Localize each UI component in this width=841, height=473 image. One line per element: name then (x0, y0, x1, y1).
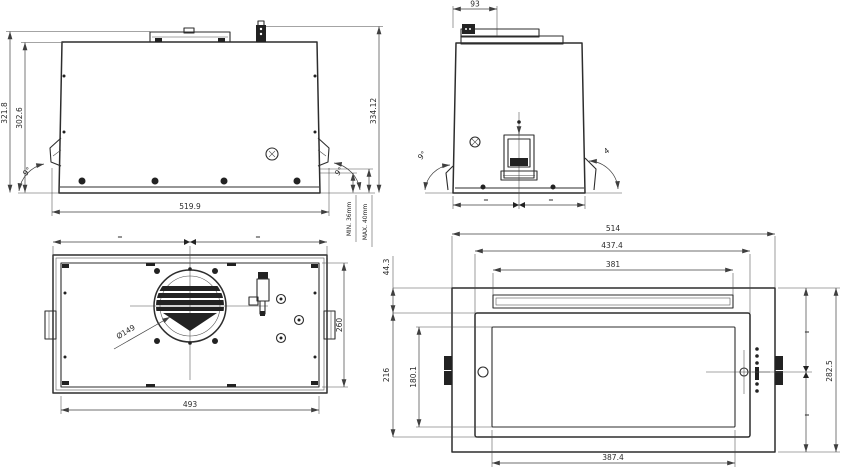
angle-label-side-left: 9° (416, 149, 429, 162)
equal-mark-bottom-top: = (804, 328, 809, 336)
angle-label-front-left: 9° (21, 165, 34, 178)
dim-label-width-top: 493 (183, 400, 198, 409)
dim-label-gap-max: MAX. 40mm (362, 204, 369, 241)
side-bracket (461, 24, 563, 44)
equal-mark-top-left: = (117, 233, 122, 241)
dim-label-glass-height: 180.1 (409, 366, 418, 388)
fan-assembly (130, 246, 268, 380)
front-body (18, 42, 375, 193)
standoff-screws (277, 295, 304, 343)
latch-left (444, 356, 452, 385)
dim-label-height-inner: 302.6 (15, 107, 24, 129)
equal-mark-top-right: = (255, 233, 260, 241)
bottom-dimensions: 514 437.4 381 44.3 216 180.1 (382, 224, 840, 467)
control-buttons (755, 347, 759, 393)
knockout-hole (266, 148, 278, 160)
dim-label-width-frame: 437.4 (601, 241, 623, 250)
dim-label-height-outer: 321.8 (0, 102, 9, 124)
angle-label-side-right: 4 (602, 146, 611, 156)
dim-label-width-front: 519.9 (179, 202, 201, 211)
latch-right (775, 356, 783, 385)
bottom-screws (63, 75, 317, 185)
capacitor (249, 272, 269, 316)
front-view: 321.8 302.6 334.12 519.9 MIN. 36mm MAX. … (0, 21, 383, 247)
dim-label-width-total: 514 (606, 224, 621, 233)
dim-label-height-total: 334.12 (369, 98, 378, 124)
dim-label-panel-height: 216 (382, 368, 391, 383)
dim-label-depth-top: 260 (335, 318, 344, 333)
dim-label-offset-top: 44.3 (382, 258, 391, 275)
side-latch-right (324, 311, 335, 339)
dim-label-depth-total: 282.5 (825, 360, 834, 382)
angle-label-front-right: 9° (333, 165, 346, 178)
dim-label-gap-min: MIN. 36mm (346, 202, 353, 237)
front-dimensions: 321.8 302.6 334.12 519.9 MIN. 36mm MAX. … (0, 27, 383, 248)
equal-mark-side-right: = (548, 196, 553, 204)
bottom-view: 514 437.4 381 44.3 216 180.1 (382, 224, 840, 467)
dim-label-duct-offset: 93 (470, 0, 480, 9)
mounting-bracket (150, 28, 230, 42)
dim-label-width-panel: 387.4 (602, 453, 624, 462)
side-view: 93 9° 4 = = (416, 0, 622, 209)
equal-mark-side-left: = (483, 196, 488, 204)
side-latch-left (45, 311, 56, 339)
bottom-housing (452, 288, 775, 452)
drawing-svg: 321.8 302.6 334.12 519.9 MIN. 36mm MAX. … (0, 0, 841, 473)
top-view: = = Ø149 260 493 (45, 233, 348, 414)
technical-drawing-canvas: 321.8 302.6 334.12 519.9 MIN. 36mm MAX. … (0, 0, 841, 473)
cable-clamp (256, 21, 266, 42)
equal-mark-bottom-bottom: = (804, 411, 809, 419)
dim-label-width-slot: 381 (606, 260, 621, 269)
